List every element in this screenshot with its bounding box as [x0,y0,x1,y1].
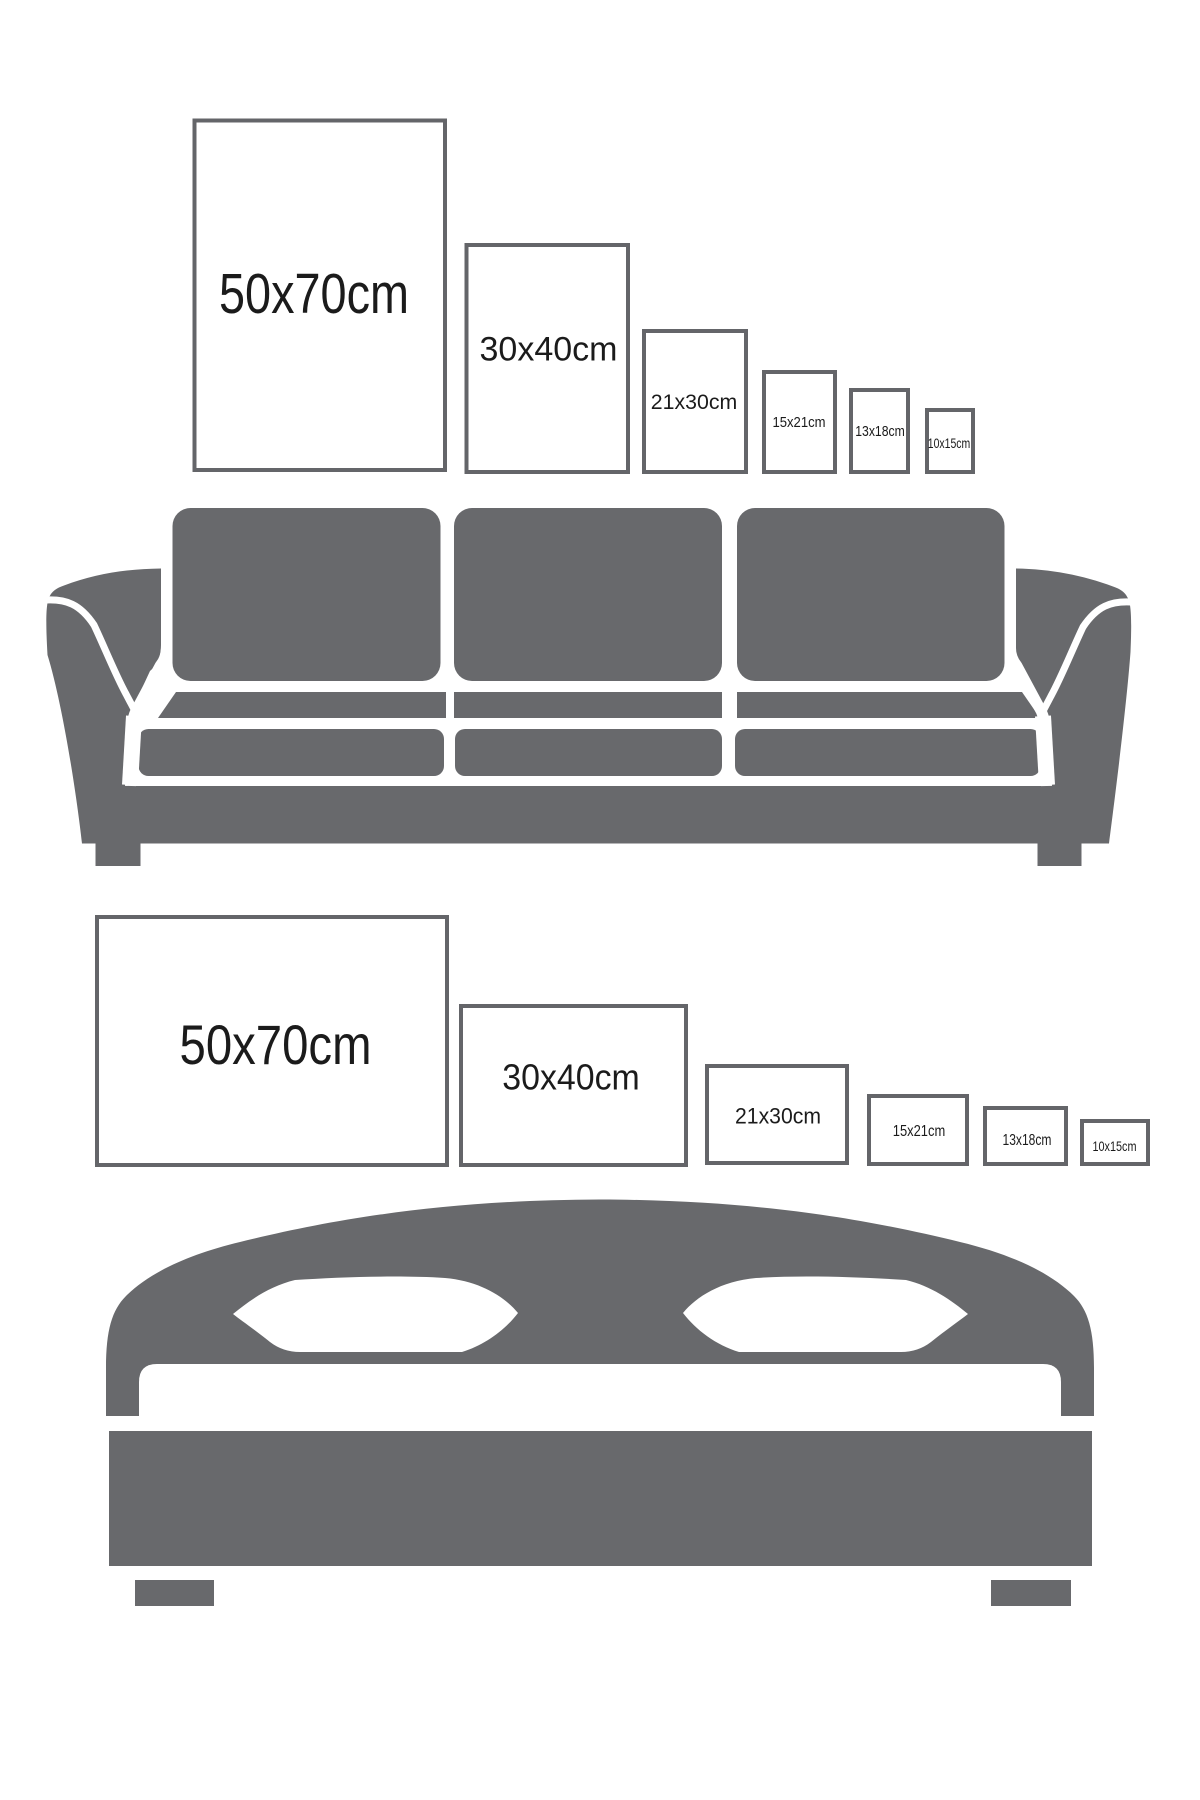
svg-text:30x40cm: 30x40cm [480,331,618,369]
svg-text:15x21cm: 15x21cm [893,1123,946,1140]
svg-text:10x15cm: 10x15cm [928,436,971,451]
svg-text:10x15cm: 10x15cm [1093,1139,1137,1154]
svg-text:50x70cm: 50x70cm [219,262,409,326]
svg-text:21x30cm: 21x30cm [651,390,738,414]
svg-text:30x40cm: 30x40cm [502,1057,640,1098]
svg-text:15x21cm: 15x21cm [773,415,826,431]
svg-text:13x18cm: 13x18cm [855,423,905,440]
svg-text:50x70cm: 50x70cm [180,1013,372,1076]
svg-text:13x18cm: 13x18cm [1003,1132,1052,1149]
svg-text:21x30cm: 21x30cm [735,1104,821,1129]
